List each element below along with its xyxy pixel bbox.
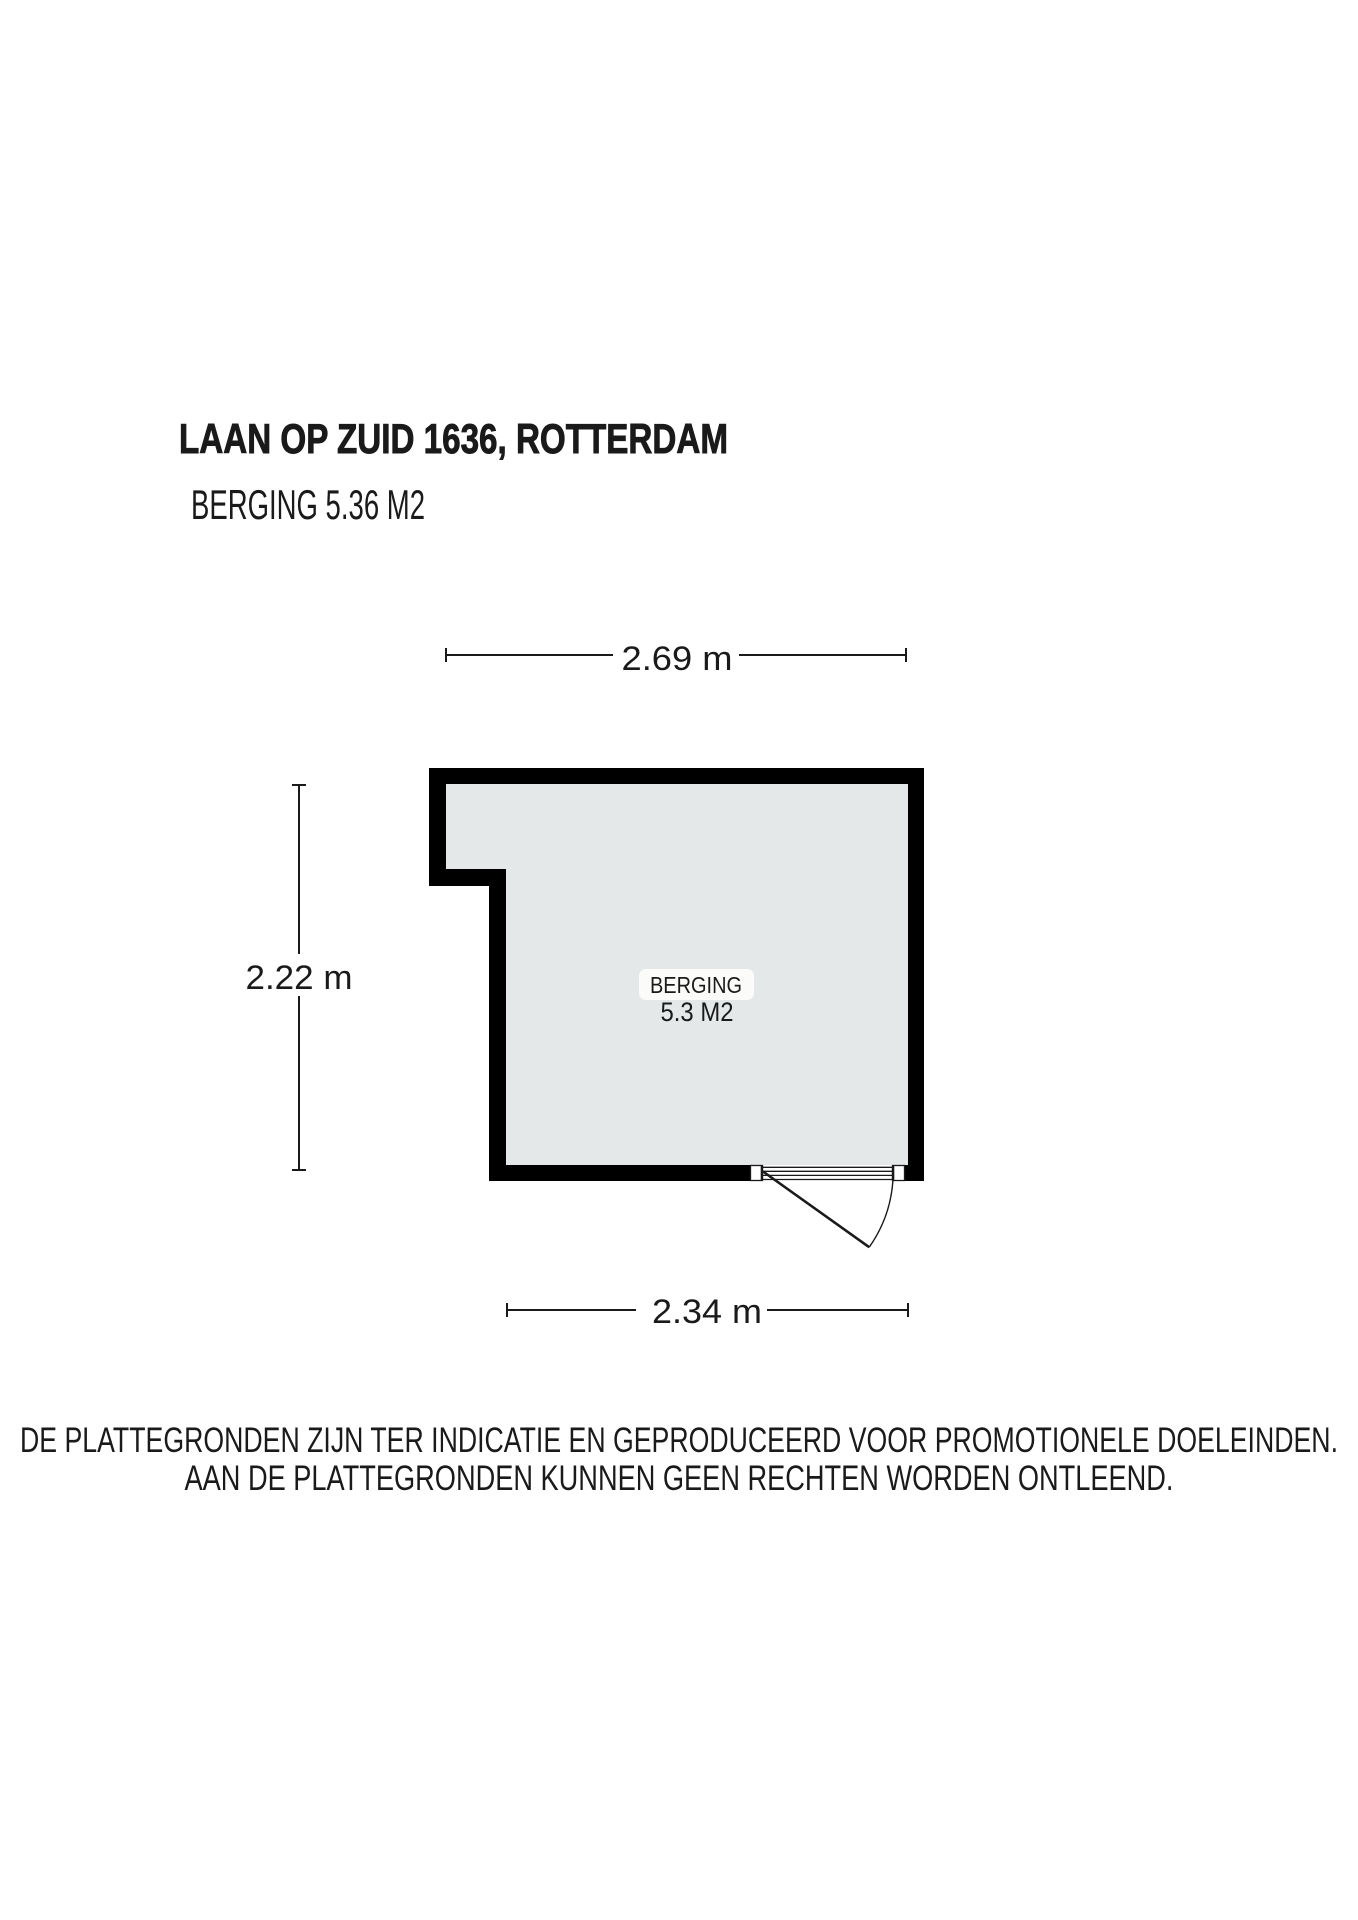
svg-text:LAAN OP ZUID 1636, ROTTERDAM: LAAN OP ZUID 1636, ROTTERDAM [179, 415, 728, 462]
svg-text:2.22 m: 2.22 m [246, 959, 353, 997]
svg-text:2.34 m: 2.34 m [652, 1293, 762, 1331]
svg-text:5.3 M2: 5.3 M2 [661, 997, 734, 1027]
svg-text:AAN DE PLATTEGRONDEN KUNNEN GE: AAN DE PLATTEGRONDEN KUNNEN GEEN RECHTEN… [185, 1459, 1174, 1498]
svg-text:BERGING: BERGING [650, 972, 742, 998]
svg-text:BERGING 5.36 M2: BERGING 5.36 M2 [191, 481, 425, 528]
svg-text:DE PLATTEGRONDEN ZIJN TER INDI: DE PLATTEGRONDEN ZIJN TER INDICATIE EN G… [20, 1421, 1338, 1460]
svg-text:2.69 m: 2.69 m [622, 640, 733, 678]
